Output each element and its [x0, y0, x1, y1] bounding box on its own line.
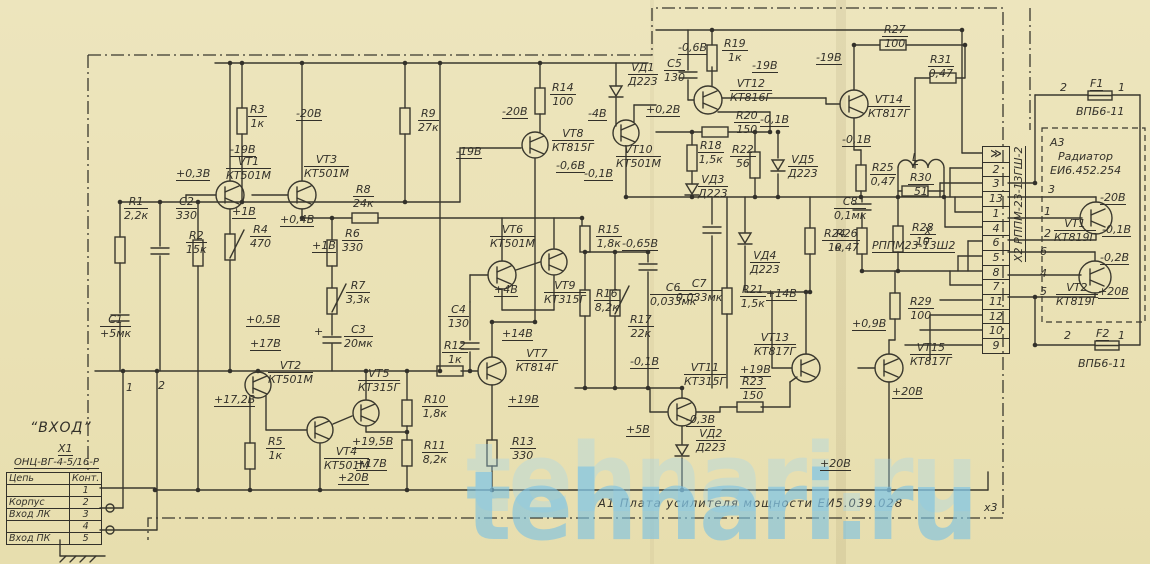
- wire: [333, 416, 352, 424]
- component-label: R51к: [266, 436, 285, 461]
- wire: [70, 556, 76, 562]
- fuse-f2-type: ВПБ6-11: [1078, 358, 1126, 369]
- wire: [516, 262, 540, 270]
- junction-dot: [155, 369, 160, 374]
- component-label: C5130: [664, 58, 685, 83]
- voltage-label: +20В: [338, 472, 369, 485]
- voltage-label: +0,4В: [280, 214, 314, 227]
- connector-pin-10: 10: [983, 323, 1009, 338]
- junction-dot: [153, 488, 158, 493]
- transistor-collector: [703, 91, 717, 97]
- junction-dot: [300, 61, 305, 66]
- transistor-emitter: [884, 371, 898, 377]
- resistor-symbol: [805, 228, 815, 254]
- transistor-collector: [677, 403, 691, 409]
- wire: [90, 556, 96, 562]
- junction-dot: [240, 61, 245, 66]
- junction-dot: [960, 28, 965, 33]
- voltage-label: +14В: [502, 328, 533, 341]
- junction-dot: [538, 61, 543, 66]
- voltage-label: -20В: [1100, 192, 1126, 205]
- component-label: C2330: [176, 196, 197, 221]
- component-label: C4130: [448, 304, 469, 329]
- transistor-emitter: [361, 416, 375, 422]
- junction-dot: [248, 488, 253, 493]
- component-label: C80,1мк: [834, 196, 866, 221]
- component-label: VТ11КТ315Г: [684, 362, 726, 387]
- component-label: R121к: [442, 340, 468, 365]
- voltage-label: -0,2В: [1100, 252, 1129, 265]
- voltage-label: +0,2В: [646, 104, 680, 117]
- resistor-symbol: [402, 400, 412, 426]
- voltage-label: +17В: [250, 338, 281, 351]
- resistor-symbol: [400, 108, 410, 134]
- voltage-label: -0,1В: [1102, 224, 1131, 237]
- junction-dot: [776, 130, 781, 135]
- resistor-symbol: [856, 165, 866, 191]
- junction-dot: [613, 250, 618, 255]
- transistor-emitter: [530, 148, 544, 154]
- table-row: 1: [7, 485, 102, 497]
- circuit-name-cell: Вход ЛК: [7, 509, 70, 521]
- junction-dot: [808, 290, 813, 295]
- input-type: ОНЦ-ВГ-4-5/16-Р: [14, 457, 99, 469]
- annotation-label: +: [314, 326, 323, 337]
- component-label: R2810: [910, 222, 936, 247]
- voltage-label: -0,6В: [556, 160, 585, 173]
- component-label: R101,8к: [422, 394, 448, 419]
- circuit-name-cell: [7, 485, 70, 497]
- annotation-label: 5: [1040, 286, 1047, 297]
- junction-dot: [1033, 343, 1038, 348]
- component-label: R927к: [418, 108, 439, 133]
- connector-arrow-cell: ≫: [983, 147, 1009, 162]
- junction-dot: [580, 216, 585, 221]
- transistor-symbol: [792, 354, 820, 382]
- table-row: Вход ЛК3: [7, 509, 102, 521]
- voltage-label: +1В: [312, 240, 336, 253]
- annotation-label: 1: [1118, 82, 1125, 93]
- resistor-symbol: [535, 88, 545, 114]
- voltage-label: +4В: [494, 284, 518, 297]
- diode-symbol: [772, 160, 784, 170]
- connector-x2: ≫23131465871112109: [982, 146, 1010, 354]
- resistor-symbol: [890, 293, 900, 319]
- board-title: А1 Плата усилителя мощности ЕИ5.039.028: [598, 496, 903, 510]
- transistor-collector: [884, 359, 898, 365]
- component-label: C320мк: [344, 324, 373, 349]
- voltage-label: -19В: [456, 146, 482, 159]
- col-header-contact: Конт.: [70, 473, 102, 485]
- voltage-label: -20В: [296, 108, 322, 121]
- resistor-symbol: [237, 108, 247, 134]
- wire: [80, 556, 86, 562]
- table-row: 4: [7, 521, 102, 533]
- annotation-label: 3: [1048, 184, 1055, 195]
- component-label: VТ14КТ817Г: [868, 94, 910, 119]
- voltage-label: +0,5В: [246, 314, 280, 327]
- col-header-circuit: Цепь: [7, 473, 70, 485]
- voltage-label: -0,65В: [622, 238, 658, 251]
- component-label: R310,47: [928, 54, 954, 79]
- voltage-label: +19В: [508, 394, 539, 407]
- resistor-symbol: [352, 213, 378, 223]
- junction-dot: [646, 386, 651, 391]
- annotation-label: 2: [1044, 228, 1051, 239]
- annotation-label: 6: [1040, 246, 1047, 257]
- contact-number-cell: 5: [70, 533, 102, 545]
- annotation-label: 2: [158, 380, 165, 391]
- component-label: R31к: [248, 104, 267, 129]
- junction-dot: [887, 488, 892, 493]
- voltage-label: +1В: [232, 206, 256, 219]
- component-label: R191к: [722, 38, 748, 63]
- junction-dot: [753, 195, 758, 200]
- annotation-label: 1: [1118, 330, 1125, 341]
- junction-dot: [490, 488, 495, 493]
- component-label: R250,47: [870, 162, 896, 187]
- junction-dot: [403, 200, 408, 205]
- diode-symbol: [686, 184, 698, 194]
- junction-dot: [896, 195, 901, 200]
- component-label: R118,2к: [422, 440, 448, 465]
- junction-dot: [613, 386, 618, 391]
- diode-symbol: [676, 445, 688, 455]
- component-label: VД5Д223: [788, 154, 818, 179]
- junction-dot: [196, 488, 201, 493]
- transistor-emitter: [549, 265, 563, 271]
- connector-pin-1: 1: [983, 206, 1009, 221]
- transistor-emitter: [849, 107, 863, 113]
- voltage-label: -0,3В: [686, 414, 715, 427]
- inductor-symbol: [898, 159, 944, 168]
- component-label: R6330: [342, 228, 363, 253]
- transistor-collector: [225, 186, 239, 192]
- component-label: VТ8КТ815Г: [552, 128, 594, 153]
- component-label: C1+5мк: [100, 314, 131, 339]
- input-title: “ВХОД”: [30, 420, 92, 436]
- junction-dot: [776, 195, 781, 200]
- component-label: VТ5КТ315Г: [358, 368, 400, 393]
- contact-number-cell: 4: [70, 521, 102, 533]
- component-label: VТ1КТ501М: [226, 156, 271, 181]
- transistor-emitter: [621, 136, 635, 142]
- connector-pin-13: 13: [983, 191, 1009, 206]
- junction-dot: [942, 195, 947, 200]
- transistor-collector: [315, 421, 329, 427]
- junction-dot: [690, 130, 695, 135]
- radiator-code: ЕИ6.452.254: [1050, 164, 1121, 178]
- voltage-label: +5В: [626, 424, 650, 437]
- component-label: VД4Д223: [750, 250, 780, 275]
- transistor-collector: [497, 266, 511, 272]
- junction-dot: [121, 369, 126, 374]
- resistor-symbol: [402, 440, 412, 466]
- connector-x2-label: Х2 РППМ-23-13ГШ-2: [1012, 147, 1026, 263]
- voltage-label: +20В: [1098, 286, 1129, 299]
- voltage-label: +0,9В: [852, 318, 886, 331]
- resistor-symbol: [580, 226, 590, 252]
- junction-dot: [963, 43, 968, 48]
- diode-symbol: [610, 86, 622, 96]
- connector-pin-12: 12: [983, 309, 1009, 324]
- transistor-emitter: [297, 198, 311, 204]
- junction-dot: [118, 200, 123, 205]
- transistor-collector: [487, 362, 501, 368]
- voltage-label: -0,6В: [678, 42, 707, 55]
- table-header-row: Цепь Конт.: [7, 473, 102, 485]
- voltage-label: -0,1В: [842, 134, 871, 147]
- component-label: R151,8к: [596, 224, 622, 249]
- transistor-emitter: [315, 433, 329, 439]
- input-pin-table: Цепь Конт. 1Корпус2Вход ЛК34Вход ПК5: [6, 472, 102, 545]
- junction-dot: [768, 130, 773, 135]
- transistor-collector: [361, 404, 375, 410]
- transistor-collector: [549, 253, 563, 259]
- resistor-symbol: [245, 443, 255, 469]
- radiator-name: Радиатор: [1050, 150, 1121, 164]
- component-label: R23150: [740, 376, 766, 401]
- contact-number-cell: 3: [70, 509, 102, 521]
- connector-pin-8: 8: [983, 265, 1009, 280]
- voltage-label: -0,1В: [760, 114, 789, 127]
- transistor-collector: [849, 95, 863, 101]
- annotation-label: 4: [1040, 268, 1047, 279]
- component-label: R4470: [250, 224, 271, 249]
- component-label: R73,3к: [346, 280, 370, 305]
- junction-dot: [228, 369, 233, 374]
- voltage-label: -4В: [588, 108, 607, 121]
- transistor-collector: [801, 359, 815, 365]
- circuit-name-cell: Корпус: [7, 497, 70, 509]
- junction-dot: [1033, 295, 1038, 300]
- voltage-label: +14В: [766, 288, 797, 301]
- component-label: R12,2к: [124, 196, 148, 221]
- voltage-label: +0,3В: [176, 168, 210, 181]
- connector-pin-7: 7: [983, 279, 1009, 294]
- junction-dot: [228, 61, 233, 66]
- radiator-block: А3 Радиатор ЕИ6.452.254: [1050, 136, 1121, 178]
- junction-dot: [583, 386, 588, 391]
- connector-pin-4: 4: [983, 221, 1009, 236]
- component-label: VТ10КТ501М: [616, 144, 661, 169]
- junction-dot: [330, 216, 335, 221]
- junction-dot: [490, 320, 495, 325]
- junction-dot: [680, 488, 685, 493]
- junction-dot: [710, 28, 715, 33]
- junction-dot: [403, 61, 408, 66]
- resistor-symbol: [702, 127, 728, 137]
- radiator-designator: А3: [1050, 136, 1121, 150]
- component-label: VД1Д223: [628, 62, 658, 87]
- component-label: R1722к: [628, 314, 654, 339]
- component-label: R3051: [908, 172, 934, 197]
- voltage-label: -0,1В: [584, 168, 613, 181]
- fuse-f2-label: F2: [1096, 328, 1109, 341]
- component-label: VТ1КТ819Г: [1054, 218, 1096, 243]
- annotation-label: 2: [1064, 330, 1071, 341]
- component-label: VТ2КТ819Г: [1056, 282, 1098, 307]
- annotation-label: 1: [126, 382, 133, 393]
- component-label: R215к: [186, 230, 207, 255]
- annotation-label: 2: [1060, 82, 1067, 93]
- connector-pin-11: 11: [983, 294, 1009, 309]
- table-row: Вход ПК5: [7, 533, 102, 545]
- junction-dot: [438, 369, 443, 374]
- component-label: R13330: [510, 436, 536, 461]
- connector-pin-3: 3: [983, 176, 1009, 191]
- component-label: VТ2КТ501М: [268, 360, 313, 385]
- component-label: C70,033мк: [676, 278, 722, 303]
- component-label: R211,5к: [740, 284, 766, 309]
- junction-dot: [1033, 181, 1038, 186]
- voltage-label: +20В: [892, 386, 923, 399]
- transistor-collector: [297, 186, 311, 192]
- component-label: R168,2к: [594, 288, 620, 313]
- diode-symbol: [739, 233, 751, 243]
- contact-number-cell: 2: [70, 497, 102, 509]
- connector-pin-9: 9: [983, 338, 1009, 353]
- voltage-label: -20В: [502, 106, 528, 119]
- table-row: Корпус2: [7, 497, 102, 509]
- junction-dot: [896, 269, 901, 274]
- junction-dot: [405, 369, 410, 374]
- resistor-symbol: [225, 234, 235, 260]
- contact-number-cell: 1: [70, 485, 102, 497]
- component-label: VТ3КТ501М: [304, 154, 349, 179]
- connector-pin-5: 5: [983, 250, 1009, 265]
- connector-pin-2: 2: [983, 162, 1009, 177]
- component-label: R2256: [730, 144, 756, 169]
- component-label: VД2Д223: [696, 428, 726, 453]
- transistor-emitter: [703, 103, 717, 109]
- junction-dot: [158, 200, 163, 205]
- junction-dot: [533, 320, 538, 325]
- junction-dot: [318, 488, 323, 493]
- component-label: R14100: [550, 82, 576, 107]
- transistor-emitter: [225, 198, 239, 204]
- resistor-symbol: [687, 145, 697, 171]
- schematic-scan: “ВХОД” X1 ОНЦ-ВГ-4-5/16-Р Цепь Конт. 1Ко…: [0, 0, 1150, 564]
- junction-dot: [468, 369, 473, 374]
- component-label: R29100: [908, 296, 934, 321]
- component-label: R20150: [734, 110, 760, 135]
- junction-dot: [804, 290, 809, 295]
- transistor-collector: [253, 376, 267, 382]
- component-label: VТ7КТ814Г: [516, 348, 558, 373]
- connector-pin-6: 6: [983, 235, 1009, 250]
- annotation-label: 1: [1044, 206, 1051, 217]
- junction-dot: [860, 269, 865, 274]
- component-label: VТ15КТ817Г: [910, 342, 952, 367]
- component-label: R181,5к: [698, 140, 724, 165]
- resistor-symbol: [327, 288, 337, 314]
- fuse-f1-label: F1: [1090, 78, 1103, 91]
- resistor-symbol: [737, 402, 763, 412]
- component-label: R27100: [882, 24, 908, 49]
- resistor-symbol: [115, 237, 125, 263]
- transistor-collector: [1090, 268, 1104, 274]
- fuse-f1-type: ВПБ6-11: [1076, 106, 1124, 117]
- junction-dot: [583, 250, 588, 255]
- transistor-collector: [1091, 209, 1105, 215]
- component-label: VТ9КТ315Г: [544, 280, 586, 305]
- transistor-symbol: [694, 86, 722, 114]
- voltage-label: -19В: [752, 60, 778, 73]
- x3-label: х3: [984, 502, 998, 513]
- input-designator: X1: [58, 442, 73, 456]
- voltage-label: +17,2В: [214, 394, 255, 407]
- transistor-collector: [530, 136, 544, 142]
- component-label: VТ4КТ501М: [324, 446, 369, 471]
- component-label: R260,47: [834, 228, 860, 253]
- circuit-name-cell: Вход ПК: [7, 533, 70, 545]
- transistor-collector: [621, 124, 635, 130]
- transistor-symbol: [288, 181, 316, 209]
- circuit-name-cell: [7, 521, 70, 533]
- transistor-symbol: [875, 354, 903, 382]
- annotation-label: L: [912, 152, 918, 165]
- junction-dot: [405, 430, 410, 435]
- voltage-label: +20В: [820, 458, 851, 471]
- component-label: VТ6КТ501М: [490, 224, 535, 249]
- component-label: VТ13КТ817Г: [754, 332, 796, 357]
- wire: [60, 556, 66, 562]
- junction-dot: [852, 43, 857, 48]
- transistor-symbol: [840, 90, 868, 118]
- junction-dot: [405, 488, 410, 493]
- junction-dot: [690, 195, 695, 200]
- voltage-label: -0,1В: [630, 356, 659, 369]
- junction-dot: [240, 200, 245, 205]
- resistor-symbol: [487, 440, 497, 466]
- resistor-symbol: [722, 288, 732, 314]
- transistor-emitter: [487, 374, 501, 380]
- transistor-emitter: [801, 371, 815, 377]
- component-label: VТ12КТ816Г: [730, 78, 772, 103]
- component-label: R824к: [353, 184, 374, 209]
- transistor-symbol: [478, 357, 506, 385]
- voltage-label: -19В: [816, 52, 842, 65]
- junction-dot: [624, 195, 629, 200]
- junction-dot: [438, 61, 443, 66]
- component-label: VД3Д223: [698, 174, 728, 199]
- junction-dot: [256, 369, 261, 374]
